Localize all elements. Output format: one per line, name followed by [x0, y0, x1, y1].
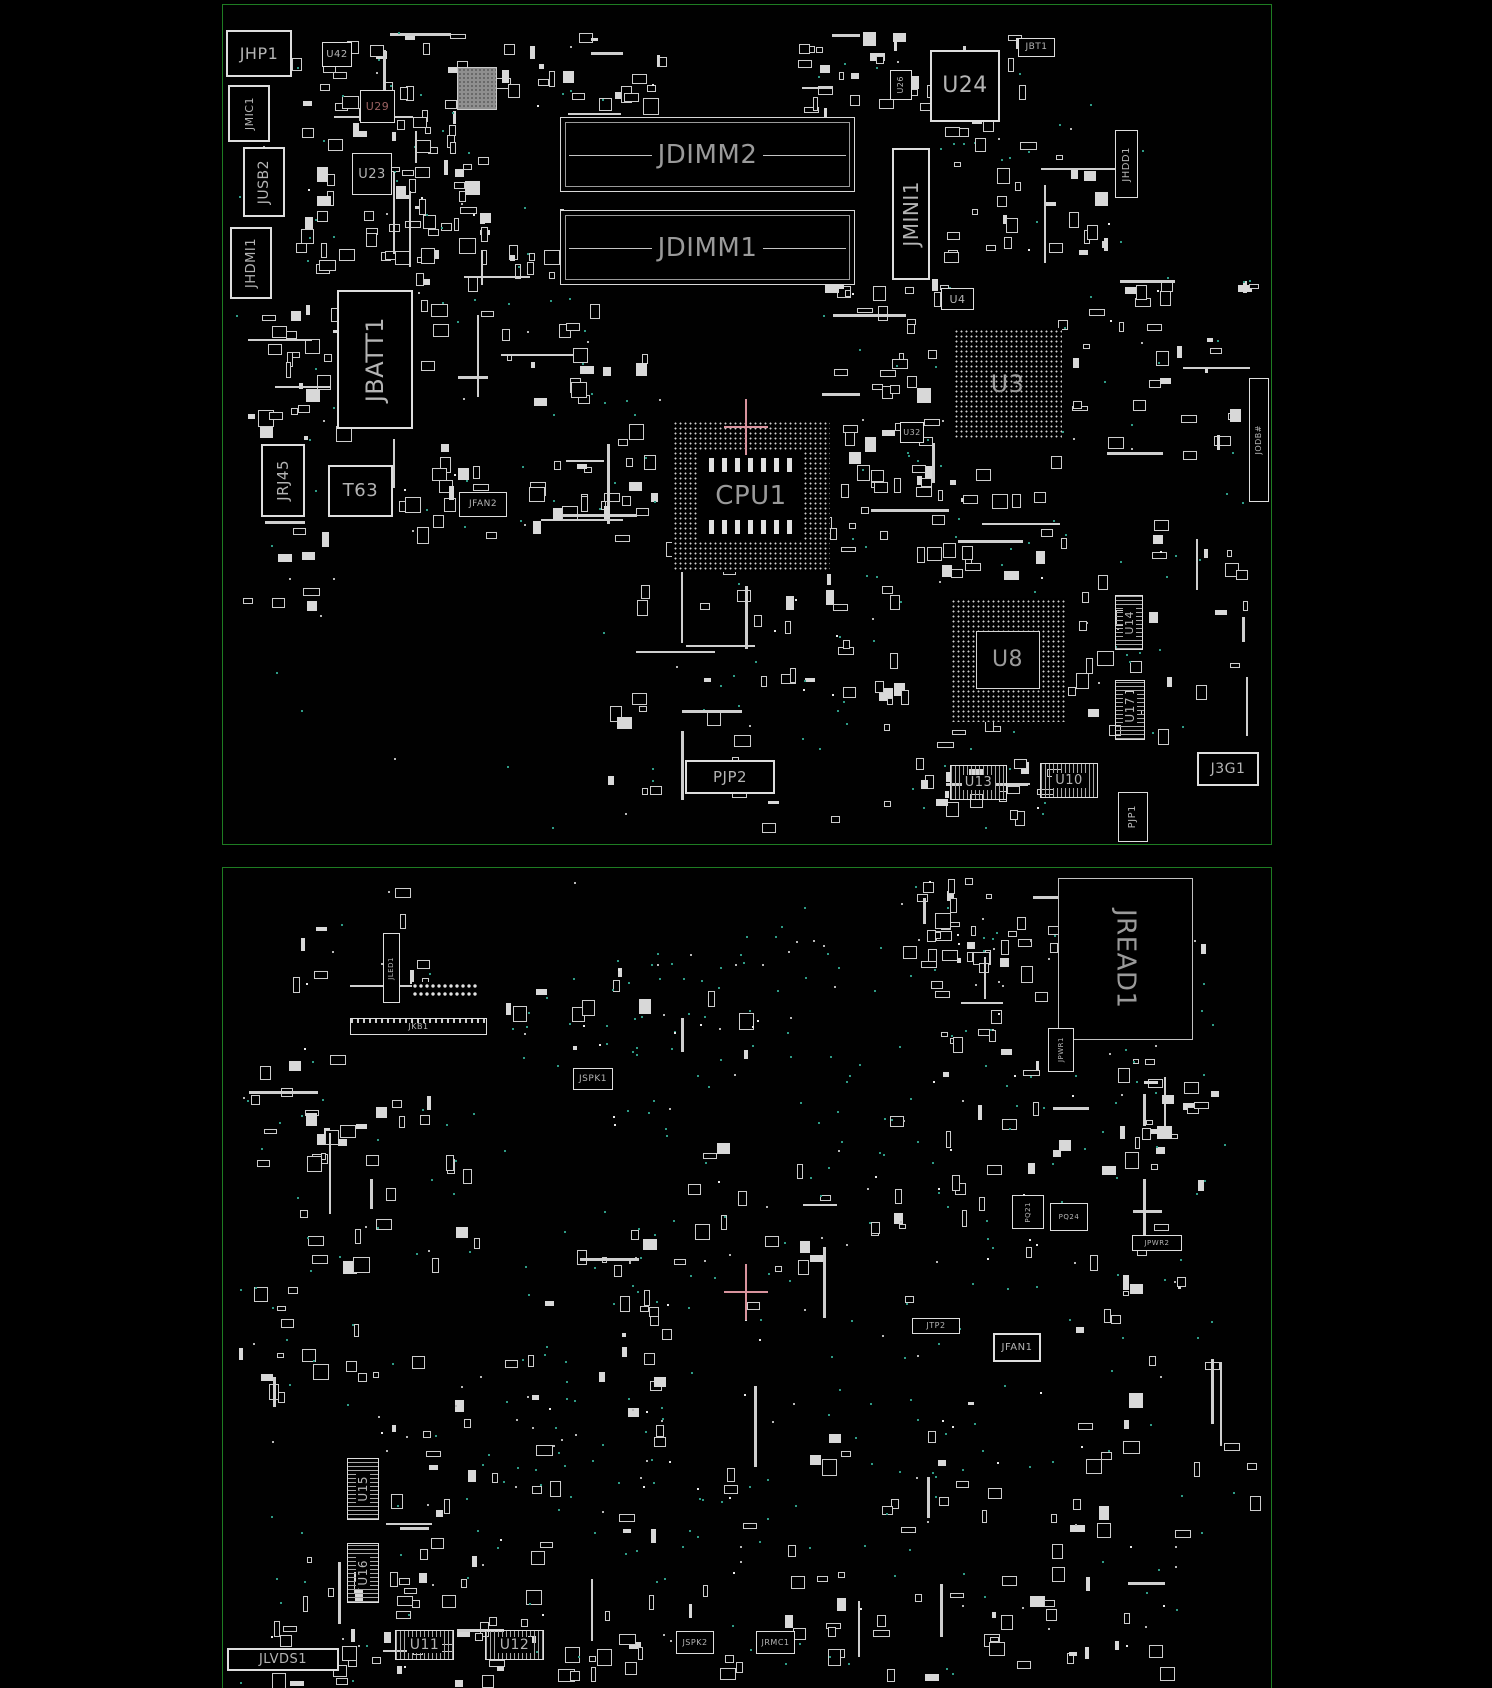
- pcb-clutter: [947, 1206, 949, 1208]
- pcb-clutter: [830, 528, 837, 539]
- pcb-clutter: [557, 1065, 559, 1067]
- pcb-clutter: [662, 1329, 671, 1339]
- pcb-clutter: [529, 253, 536, 261]
- component-label: PJP2: [713, 770, 747, 785]
- pcb-clutter: [474, 299, 476, 301]
- pcb-clutter: [1246, 677, 1249, 736]
- pcb-clutter: [721, 1501, 723, 1503]
- pcb-clutter: [355, 1229, 361, 1244]
- pcb-clutter: [591, 1667, 596, 1682]
- pcb-clutter: [857, 465, 869, 481]
- pcb-clutter: [897, 61, 899, 63]
- pcb-clutter: [645, 1431, 647, 1433]
- pcb-clutter: [309, 237, 311, 239]
- pcb-clutter: [404, 1666, 406, 1668]
- pcb-clutter: [529, 487, 545, 503]
- pcb-clutter: [622, 1347, 627, 1357]
- pcb-clutter: [614, 1265, 623, 1277]
- pcb-clutter: [1126, 654, 1128, 656]
- pcb-clutter: [968, 1402, 974, 1406]
- pcb-clutter: [849, 452, 861, 464]
- pcb-clutter: [1142, 150, 1144, 152]
- pcb-clutter: [1052, 1163, 1054, 1165]
- pcb-clutter: [839, 1389, 841, 1391]
- pcb-clutter: [330, 1055, 346, 1065]
- pcb-clutter: [342, 95, 344, 97]
- pcb-clutter: [1184, 1082, 1199, 1094]
- pcb-clutter: [737, 590, 751, 602]
- pcb-clutter: [280, 1602, 282, 1604]
- pcb-clutter: [558, 1509, 560, 1511]
- pcb-clutter: [749, 1486, 751, 1488]
- pcb-clutter: [628, 982, 630, 984]
- pcb-clutter: [1012, 494, 1021, 508]
- pcb-clutter: [962, 1605, 964, 1607]
- pcb-clutter: [1196, 1193, 1198, 1195]
- pcb-clutter: [876, 56, 884, 64]
- pcb-clutter: [882, 586, 893, 594]
- pcb-clutter: [828, 1167, 830, 1169]
- pcb-clutter: [239, 1348, 243, 1360]
- pcb-clutter: [641, 1016, 643, 1018]
- pcb-clutter: [945, 1433, 947, 1435]
- pcb-clutter: [426, 1451, 441, 1458]
- pcb-clutter: [640, 1257, 642, 1259]
- pcb-clutter: [271, 1516, 273, 1518]
- pcb-clutter: [1249, 284, 1258, 289]
- pcb-clutter: [986, 245, 996, 251]
- pcb-clutter: [638, 1647, 643, 1661]
- pcb-clutter: [272, 1441, 274, 1443]
- pcb-clutter: [253, 1343, 255, 1345]
- pcb-clutter: [823, 315, 825, 317]
- component-label: PQ21: [1025, 1202, 1032, 1223]
- pcb-clutter: [935, 1476, 937, 1478]
- pcb-clutter: [724, 1216, 726, 1218]
- pcb-clutter: [1029, 1466, 1031, 1468]
- pcb-clutter: [871, 509, 949, 512]
- pcb-clutter: [599, 1044, 601, 1046]
- component-label: JRJ45: [276, 460, 291, 501]
- pcb-clutter: [733, 675, 735, 677]
- pcb-clutter: [1048, 958, 1050, 960]
- component-label: U3: [991, 372, 1025, 396]
- pcb-clutter: [717, 1143, 729, 1154]
- pcb-clutter: [269, 412, 283, 420]
- pcb-clutter: [1128, 1582, 1165, 1585]
- pcb-clutter: [824, 108, 827, 116]
- pcb-clutter: [749, 725, 751, 727]
- pcb-clutter: [454, 218, 460, 231]
- pcb-clutter: [1197, 1337, 1199, 1339]
- pcb-clutter: [333, 236, 335, 238]
- pcb-clutter: [565, 1361, 567, 1363]
- component-u17: U17: [1115, 680, 1145, 740]
- pcb-clutter: [293, 977, 300, 993]
- pcb-clutter: [880, 370, 896, 377]
- pcb-clutter: [1044, 1600, 1055, 1607]
- pcb-clutter: [578, 1656, 580, 1658]
- component-label: JFAN1: [1002, 1343, 1033, 1353]
- pcb-clutter: [309, 439, 311, 441]
- pcb-clutter: [366, 233, 377, 247]
- pcb-clutter: [775, 936, 777, 938]
- pcb-clutter: [1041, 168, 1117, 171]
- pcb-clutter: [571, 382, 587, 398]
- pcb-clutter: [1090, 296, 1092, 298]
- pcb-clutter: [1097, 1523, 1111, 1538]
- pcb-clutter: [962, 546, 973, 560]
- pcb-clutter: [260, 427, 274, 438]
- pcb-clutter: [480, 1376, 482, 1378]
- pcb-clutter: [993, 948, 995, 950]
- pcb-clutter: [444, 160, 448, 174]
- pcb-clutter: [632, 1285, 634, 1287]
- pcb-clutter: [884, 724, 891, 731]
- pcb-clutter: [1034, 591, 1036, 593]
- pcb-clutter: [768, 801, 779, 805]
- pcb-clutter: [322, 532, 328, 547]
- pcb-clutter: [342, 96, 359, 108]
- pcb-clutter: [1009, 768, 1011, 770]
- pcb-clutter: [785, 1615, 793, 1628]
- pcb-clutter: [1130, 661, 1142, 673]
- pcb-clutter: [714, 1277, 716, 1279]
- pcb-clutter: [1149, 380, 1161, 388]
- pcb-clutter: [649, 1307, 660, 1317]
- pcb-clutter: [529, 1603, 531, 1605]
- pcb-clutter: [620, 1296, 630, 1312]
- pcb-clutter: [289, 578, 291, 580]
- pcb-clutter: [533, 521, 541, 534]
- pcb-clutter: [327, 174, 334, 186]
- pcb-clutter: [982, 1450, 984, 1452]
- pcb-clutter: [659, 978, 661, 980]
- pcb-clutter: [666, 1135, 668, 1137]
- pcb-clutter: [590, 304, 601, 319]
- pcb-clutter: [629, 424, 644, 440]
- pcb-clutter: [640, 1306, 649, 1313]
- pcb-clutter: [1081, 1446, 1083, 1448]
- pcb-clutter: [983, 950, 985, 952]
- pcb-clutter: [691, 1372, 693, 1374]
- pcb-clutter: [759, 1541, 761, 1543]
- pcb-clutter: [823, 945, 825, 947]
- pcb-clutter: [1149, 1645, 1163, 1659]
- pcb-clutter: [905, 1296, 914, 1303]
- component-label: JHP1: [240, 46, 279, 62]
- pcb-clutter: [303, 588, 320, 596]
- pcb-clutter: [777, 990, 779, 992]
- pcb-clutter: [570, 46, 572, 48]
- pcb-clutter: [1059, 124, 1061, 126]
- pcb-clutter: [708, 1086, 710, 1088]
- pcb-clutter: [1135, 1137, 1140, 1150]
- pcb-clutter: [827, 574, 831, 585]
- pcb-clutter: [1108, 437, 1124, 449]
- pcb-clutter: [354, 1324, 359, 1336]
- pcb-clutter: [1028, 542, 1030, 544]
- pcb-clutter: [603, 632, 605, 634]
- pcb-clutter: [1155, 1045, 1157, 1047]
- pcb-clutter: [846, 1081, 848, 1083]
- pcb-clutter: [1133, 400, 1146, 411]
- pcb-clutter: [454, 474, 456, 476]
- pcb-clutter: [304, 1048, 306, 1050]
- pcb-clutter: [1083, 344, 1090, 349]
- pcb-clutter: [399, 1116, 406, 1128]
- pcb-clutter: [822, 1459, 837, 1475]
- pcb-clutter: [394, 758, 396, 760]
- pcb-clutter: [793, 1403, 795, 1405]
- pcb-clutter: [879, 1152, 881, 1154]
- pcb-clutter: [1001, 1615, 1013, 1630]
- pcb-clutter: [987, 1238, 989, 1240]
- pcb-clutter: [472, 1556, 478, 1566]
- pcb-clutter: [356, 1124, 367, 1129]
- pcb-clutter: [935, 366, 937, 368]
- pcb-clutter: [852, 293, 854, 295]
- pcb-clutter: [1051, 456, 1062, 469]
- pcb-clutter: [878, 306, 888, 321]
- pcb-clutter: [802, 738, 804, 740]
- pcb-clutter: [1146, 1120, 1153, 1125]
- pcb-clutter: [283, 1626, 297, 1632]
- pcb-clutter: [829, 1434, 842, 1444]
- component-u24: U24: [930, 50, 1000, 122]
- pcb-clutter: [874, 990, 876, 992]
- pcb-clutter: [339, 1256, 341, 1258]
- pcb-clutter: [838, 1150, 840, 1152]
- pcb-clutter: [352, 1680, 354, 1682]
- pcb-clutter: [431, 1538, 443, 1550]
- pcb-clutter: [1007, 1288, 1009, 1290]
- pcb-clutter: [1160, 1376, 1162, 1378]
- pcb-clutter: [1017, 1661, 1031, 1669]
- pcb-clutter: [841, 547, 857, 552]
- component-jfan1: JFAN1: [993, 1333, 1041, 1362]
- pcb-clutter: [997, 196, 1007, 207]
- pcb-clutter: [1131, 424, 1133, 426]
- pcb-clutter: [632, 74, 647, 84]
- pcb-clutter: [1139, 652, 1141, 654]
- pcb-clutter: [442, 1595, 456, 1608]
- pcb-clutter: [1120, 241, 1122, 243]
- pcb-clutter: [477, 315, 480, 396]
- pcb-clutter: [240, 1289, 242, 1291]
- pcb-clutter: [317, 167, 328, 182]
- pcb-clutter: [831, 816, 840, 823]
- pcb-clutter: [429, 1465, 438, 1470]
- pcb-clutter: [615, 535, 630, 542]
- pcb-clutter: [1086, 1459, 1102, 1474]
- pcb-clutter: [636, 651, 715, 654]
- pcb-clutter: [613, 1303, 615, 1305]
- component-label: JMINI1: [901, 181, 921, 247]
- component-label: JSPK2: [682, 1639, 707, 1647]
- pcb-clutter: [638, 1228, 640, 1230]
- pcb-clutter: [1030, 1076, 1032, 1078]
- pcb-clutter: [291, 311, 300, 322]
- pcb-clutter: [663, 1634, 665, 1636]
- pcb-clutter: [302, 128, 314, 138]
- component-jhp1: JHP1: [226, 30, 292, 77]
- pcb-clutter: [918, 939, 920, 941]
- pcb-clutter: [1089, 309, 1105, 316]
- pcb-clutter: [785, 1663, 787, 1665]
- pcb-clutter: [935, 913, 951, 929]
- pcb-clutter: [516, 1419, 518, 1421]
- pcb-clutter: [623, 1529, 631, 1533]
- pcb-clutter: [651, 1459, 653, 1461]
- pcb-clutter: [846, 1244, 848, 1246]
- pcb-clutter: [940, 1584, 943, 1637]
- pcb-clutter: [320, 84, 330, 91]
- pcb-clutter: [455, 1160, 457, 1162]
- component-label: U10: [1052, 773, 1086, 788]
- pcb-clutter: [1070, 1525, 1085, 1532]
- pcb-clutter: [392, 1363, 394, 1365]
- pcb-clutter: [1078, 1423, 1093, 1429]
- pcb-clutter: [1099, 1506, 1109, 1521]
- pcb-clutter: [927, 547, 942, 560]
- pcb-clutter: [602, 99, 604, 101]
- pcb-clutter: [939, 1497, 949, 1506]
- pcb-clutter: [798, 1260, 809, 1275]
- pcb-clutter: [838, 1572, 845, 1578]
- pcb-clutter: [1030, 940, 1032, 942]
- pcb-clutter: [1020, 142, 1037, 150]
- pcb-clutter: [1001, 159, 1003, 161]
- pcb-clutter: [754, 615, 763, 628]
- pcb-clutter: [433, 324, 449, 338]
- pcb-clutter: [998, 138, 1000, 140]
- pcb-clutter: [799, 44, 810, 54]
- pcb-clutter: [446, 1155, 454, 1171]
- pcb-clutter: [724, 1485, 738, 1494]
- pcb-clutter: [950, 1149, 952, 1151]
- pcb-clutter: [851, 73, 859, 79]
- pcb-clutter: [984, 1596, 986, 1598]
- pcb-clutter: [719, 1028, 721, 1030]
- pcb-clutter: [421, 197, 423, 199]
- pcb-clutter: [689, 1604, 692, 1618]
- pcb-clutter: [618, 969, 620, 971]
- pcb-clutter: [555, 1427, 557, 1429]
- pcb-clutter: [648, 1112, 650, 1114]
- pcb-clutter: [841, 1141, 843, 1143]
- pcb-clutter: [657, 964, 659, 966]
- pcb-clutter: [793, 1628, 806, 1641]
- pcb-clutter: [850, 95, 860, 106]
- component-jodb: JODB#: [1249, 378, 1269, 502]
- pcb-clutter: [876, 576, 878, 578]
- pcb-clutter: [752, 1045, 754, 1047]
- pcb-clutter: [986, 894, 992, 900]
- pcb-clutter: [909, 1549, 911, 1551]
- pcb-clutter: [1048, 1628, 1050, 1630]
- pcb-clutter: [312, 1061, 314, 1063]
- pcb-clutter: [390, 85, 392, 87]
- component-u13: U13: [950, 765, 1007, 800]
- pcb-clutter: [1125, 287, 1136, 294]
- pcb-clutter: [917, 1355, 919, 1357]
- pcb-clutter: [524, 1033, 526, 1035]
- pcb-clutter: [1122, 1337, 1124, 1339]
- pcb-clutter: [581, 496, 588, 512]
- pcb-clutter: [390, 1572, 398, 1587]
- component-u26: U26: [890, 70, 912, 100]
- pcb-clutter: [315, 219, 317, 221]
- pcb-clutter: [288, 1287, 298, 1294]
- pcb-clutter: [947, 907, 949, 909]
- pcb-clutter: [704, 678, 711, 682]
- pcb-clutter: [944, 252, 959, 263]
- pcb-clutter: [917, 476, 921, 485]
- pcb-clutter: [654, 1234, 656, 1236]
- pcb-clutter: [1001, 564, 1003, 566]
- pcb-clutter: [1073, 401, 1082, 409]
- pcb-clutter: [1150, 1424, 1152, 1426]
- pcb-clutter: [817, 1576, 828, 1582]
- pcb-clutter: [305, 217, 312, 230]
- pcb-clutter: [297, 1197, 299, 1199]
- pcb-clutter: [316, 927, 326, 930]
- pcb-clutter: [651, 964, 653, 966]
- pcb-clutter: [537, 105, 539, 107]
- pcb-clutter: [1159, 649, 1161, 651]
- pcb-clutter: [458, 376, 488, 379]
- component-jpwr1: JPWR1: [1048, 1028, 1074, 1072]
- pcb-clutter: [566, 323, 581, 331]
- pcb-clutter: [566, 460, 604, 463]
- component-label: J3G1: [1211, 762, 1246, 776]
- pcb-clutter: [910, 1399, 912, 1401]
- pcb-clutter: [1036, 551, 1045, 565]
- pcb-clutter: [591, 38, 598, 41]
- pcb-clutter: [522, 466, 524, 468]
- pcb-clutter: [837, 1598, 846, 1611]
- pcb-clutter: [965, 878, 973, 885]
- pcb-clutter: [1009, 157, 1011, 159]
- pcb-clutter: [542, 1614, 544, 1616]
- pcb-clutter: [1136, 285, 1147, 300]
- pcb-clutter: [890, 653, 898, 669]
- pcb-clutter: [313, 1364, 329, 1379]
- pcb-clutter: [1194, 1102, 1209, 1109]
- component-u10: U10: [1040, 763, 1098, 798]
- pcb-clutter: [697, 1075, 699, 1077]
- pcb-clutter: [602, 1444, 604, 1446]
- pcb-clutter: [605, 1611, 610, 1621]
- pcb-clutter: [1211, 1091, 1219, 1098]
- pcb-clutter: [1199, 559, 1201, 561]
- boardview-stage: JHP1 JMIC1 JUSB2 JHDMI1 U42 U29 U23 U26 …: [0, 0, 1492, 1688]
- pcb-clutter: [405, 497, 422, 512]
- pcb-clutter: [862, 419, 864, 421]
- pcb-clutter: [582, 1000, 595, 1016]
- pcb-clutter: [329, 1133, 332, 1214]
- component-j3g1: J3G1: [1197, 752, 1259, 786]
- pcb-clutter: [618, 1482, 620, 1484]
- pcb-clutter: [1028, 249, 1030, 251]
- component-u29: U29: [360, 90, 395, 123]
- pcb-clutter: [952, 730, 965, 735]
- pcb-clutter: [700, 603, 710, 611]
- pcb-clutter: [661, 1420, 663, 1422]
- pcb-clutter: [480, 215, 484, 224]
- pcb-clutter: [420, 1115, 429, 1125]
